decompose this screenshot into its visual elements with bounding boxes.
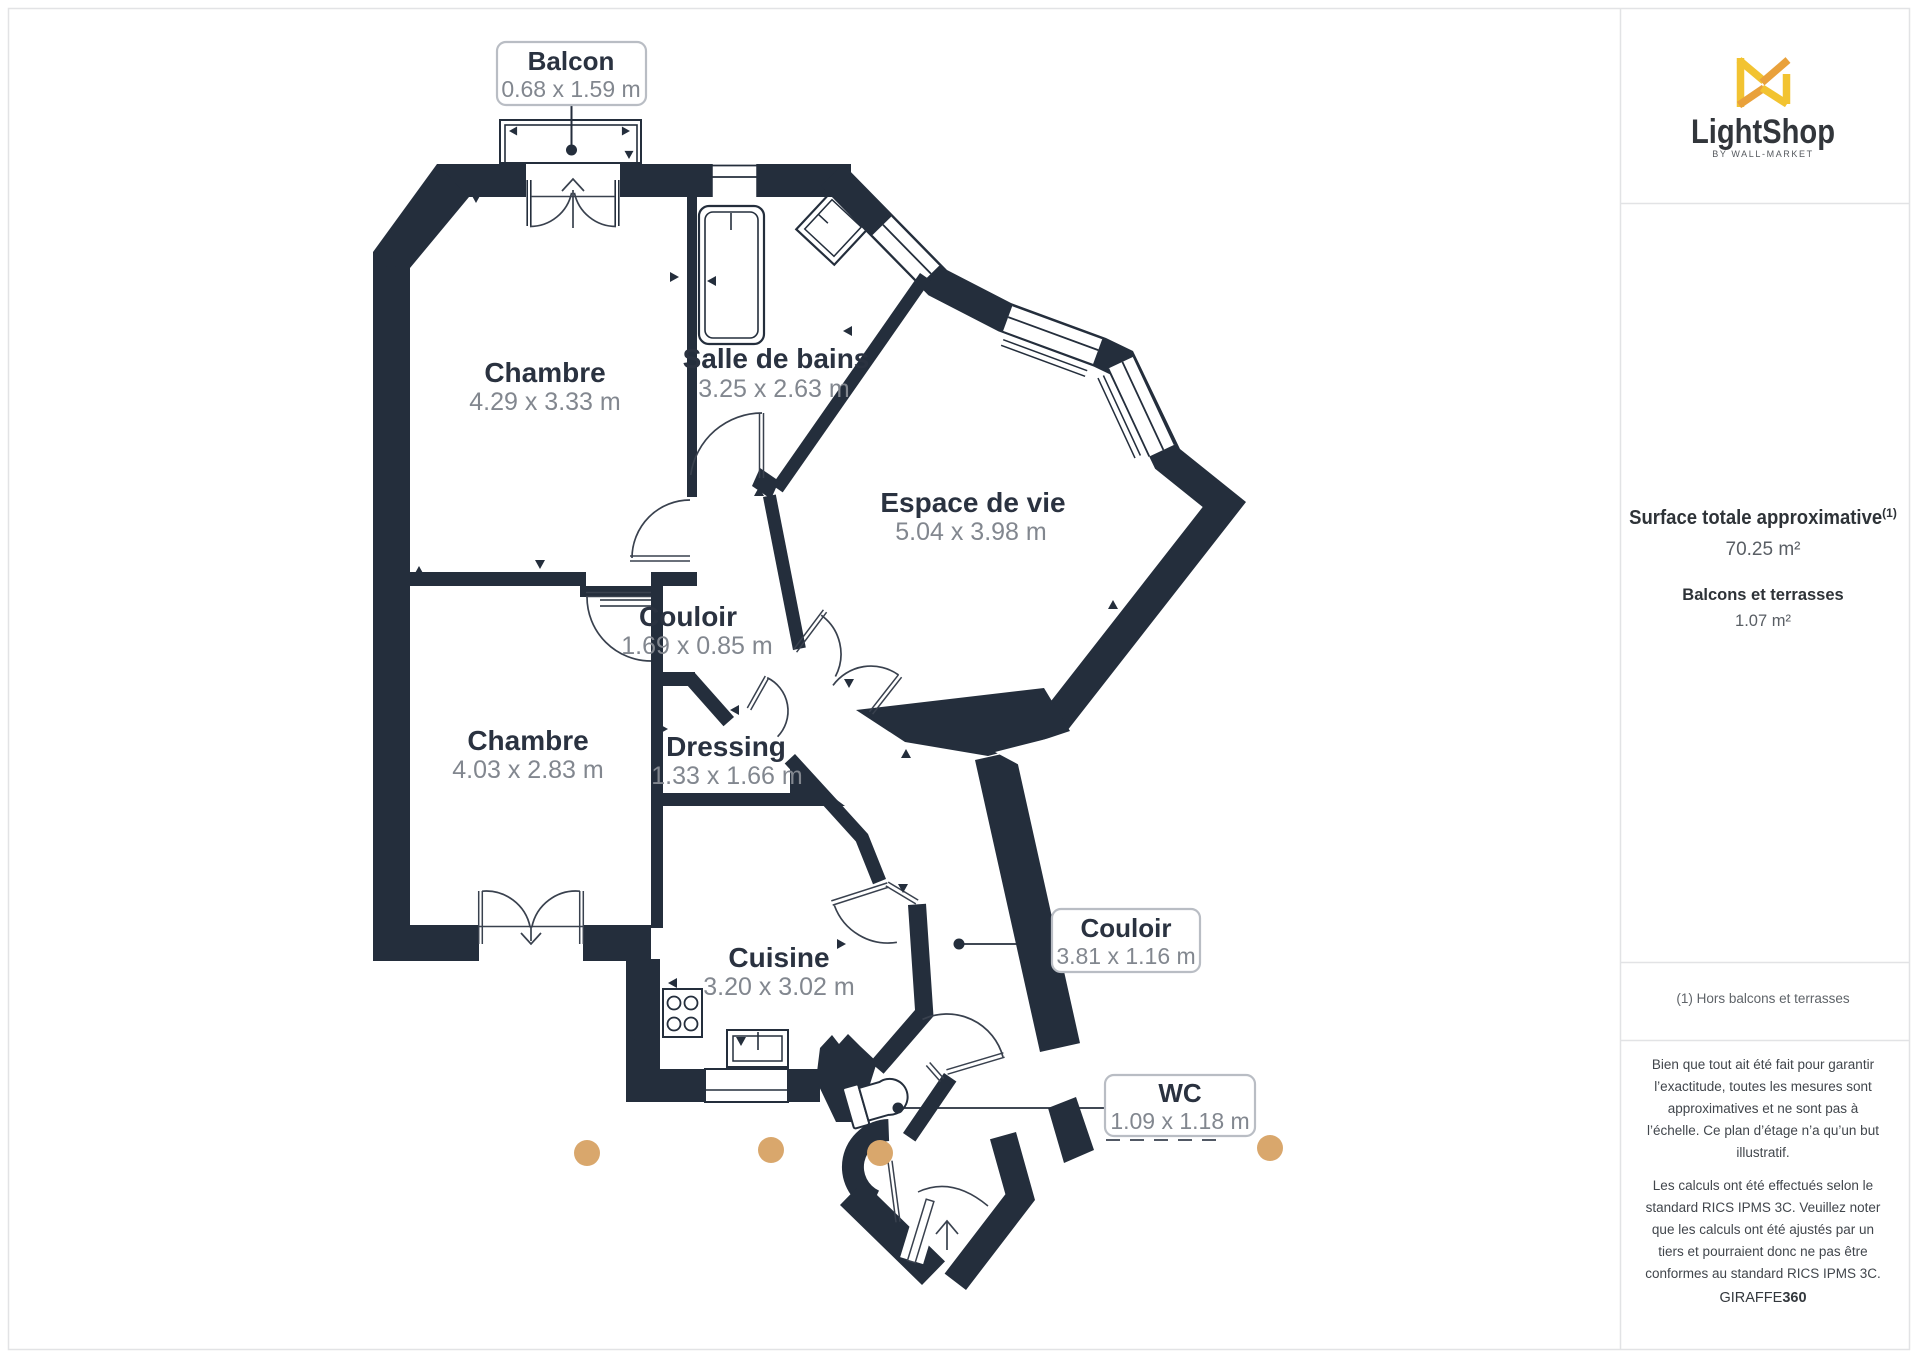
svg-text:1.69 x 0.85 m: 1.69 x 0.85 m [621, 632, 772, 660]
svg-text:standard RICS IPMS 3C. Veuille: standard RICS IPMS 3C. Veuillez noter [1646, 1200, 1881, 1215]
svg-text:conformes au standard RICS IPM: conformes au standard RICS IPMS 3C. [1645, 1266, 1881, 1281]
svg-text:Les calculs ont été effectués: Les calculs ont été effectués selon le [1653, 1178, 1873, 1193]
svg-text:3.20 x 3.02 m: 3.20 x 3.02 m [703, 973, 854, 1001]
svg-text:illustratif.: illustratif. [1736, 1145, 1789, 1160]
svg-text:1.33 x 1.66 m: 1.33 x 1.66 m [651, 762, 802, 790]
svg-text:Surface totale approximative(1: Surface totale approximative(1) [1629, 506, 1897, 529]
svg-text:Cuisine: Cuisine [728, 942, 829, 973]
svg-text:3.81 x 1.16 m: 3.81 x 1.16 m [1056, 943, 1195, 969]
svg-text:BY WALL-MARKET: BY WALL-MARKET [1712, 149, 1813, 159]
svg-text:tiers et pourraient donc ne pa: tiers et pourraient donc ne pas être [1658, 1244, 1867, 1259]
svg-text:l’échelle. Ce plan d’étage n’a: l’échelle. Ce plan d’étage n’a qu’un but [1647, 1123, 1879, 1138]
svg-text:Couloir: Couloir [1081, 913, 1172, 943]
svg-text:WC: WC [1158, 1078, 1202, 1108]
svg-text:5.04 x 3.98 m: 5.04 x 3.98 m [895, 518, 1046, 546]
svg-text:3.25 x 2.63 m: 3.25 x 2.63 m [698, 375, 849, 403]
svg-text:Couloir: Couloir [639, 601, 737, 632]
svg-text:Chambre: Chambre [467, 725, 588, 756]
svg-text:1.09 x 1.18 m: 1.09 x 1.18 m [1110, 1108, 1249, 1134]
svg-text:l’exactitude, toutes les mesur: l’exactitude, toutes les mesures sont [1654, 1079, 1872, 1094]
svg-text:Bien que tout ait été fait pou: Bien que tout ait été fait pour garantir [1652, 1057, 1875, 1072]
svg-text:4.03 x 2.83 m: 4.03 x 2.83 m [452, 756, 603, 784]
svg-text:que les calculs ont été ajusté: que les calculs ont été ajustés par un [1652, 1222, 1874, 1237]
svg-text:Chambre: Chambre [484, 357, 605, 388]
svg-text:Salle de bains: Salle de bains [683, 343, 870, 374]
svg-text:70.25 m²: 70.25 m² [1726, 539, 1801, 560]
svg-text:Balcon: Balcon [528, 46, 615, 76]
svg-text:(1) Hors balcons et terrasses: (1) Hors balcons et terrasses [1676, 991, 1850, 1006]
svg-text:Dressing: Dressing [666, 731, 786, 762]
svg-text:approximatives et ne sont pas: approximatives et ne sont pas à [1668, 1101, 1859, 1116]
svg-text:0.68 x 1.59 m: 0.68 x 1.59 m [501, 76, 640, 102]
svg-text:1.07 m²: 1.07 m² [1735, 612, 1791, 630]
svg-text:Balcons et terrasses: Balcons et terrasses [1682, 586, 1843, 604]
svg-text:GIRAFFE360: GIRAFFE360 [1719, 1290, 1806, 1306]
svg-text:4.29 x 3.33 m: 4.29 x 3.33 m [469, 388, 620, 416]
svg-text:Espace de vie: Espace de vie [880, 487, 1065, 518]
svg-text:LightShop: LightShop [1691, 113, 1835, 151]
